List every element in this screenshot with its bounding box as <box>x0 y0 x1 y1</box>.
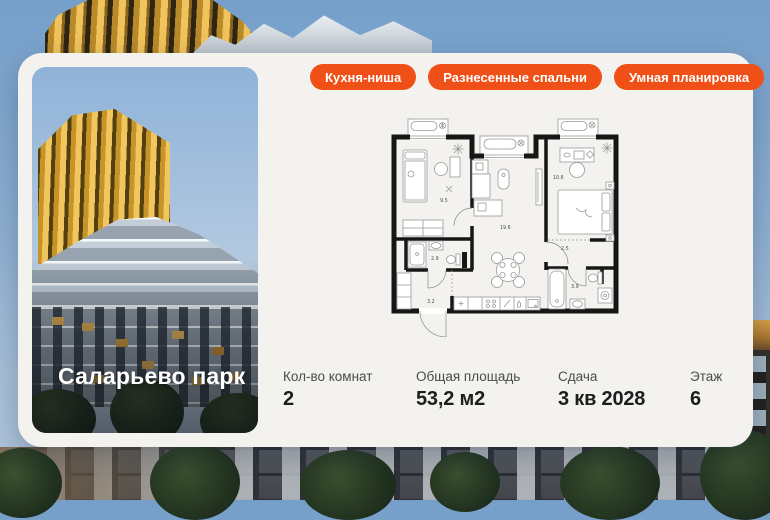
badge-separated-bedrooms[interactable]: Разнесенные спальни <box>428 64 602 90</box>
room-label-bathroom-large: 3.9 <box>571 284 579 290</box>
feature-badges: Кухня-ниша Разнесенные спальни Умная пла… <box>310 64 764 90</box>
room-label-bedroom-right: 10.6 <box>553 175 564 181</box>
stat-delivery: Сдача 3 кв 2028 <box>558 369 645 411</box>
stat-floor-label: Этаж <box>690 369 722 384</box>
stat-area: Общая площадь 53,2 м2 <box>416 369 520 411</box>
ac-box-left <box>408 119 448 135</box>
hallway-furniture <box>397 273 411 309</box>
room-label-bathroom-small: 2.9 <box>431 256 439 262</box>
room-label-hall-pass: 2.5 <box>561 246 569 252</box>
tree <box>560 446 660 520</box>
apartment-card[interactable]: Саларьево парк Кухня-ниша Разнесенные сп… <box>18 53 753 447</box>
stat-delivery-value: 3 кв 2028 <box>558 388 645 411</box>
badge-smart-layout[interactable]: Умная планировка <box>614 64 764 90</box>
stat-area-value: 53,2 м2 <box>416 388 520 411</box>
duct <box>462 252 467 268</box>
tree <box>300 450 396 520</box>
room-label-bedroom-left: 9.5 <box>440 198 448 204</box>
tree <box>150 444 240 520</box>
living-room-furniture <box>472 160 542 288</box>
project-photo[interactable]: Саларьево парк <box>32 67 258 433</box>
stat-rooms-label: Кол-во комнат <box>283 369 372 384</box>
ac-box-mid <box>480 136 528 154</box>
stat-rooms-value: 2 <box>283 388 372 411</box>
project-name: Саларьево парк <box>58 363 245 390</box>
stat-floor-value: 6 <box>690 388 722 411</box>
stat-area-label: Общая площадь <box>416 369 520 384</box>
kitchen-counter <box>454 297 540 310</box>
stat-floor: Этаж 6 <box>690 369 722 411</box>
tree <box>430 452 500 512</box>
ac-box-right <box>558 119 598 135</box>
stat-rooms: Кол-во комнат 2 <box>283 369 372 411</box>
bathroom-small-fixtures <box>408 241 460 267</box>
room-label-living: 19.6 <box>500 225 511 231</box>
room-label-hallway: 3.2 <box>427 299 435 305</box>
page: { "project": { "name": "Саларьево парк" … <box>0 0 770 500</box>
badge-kitchen-niche[interactable]: Кухня-ниша <box>310 64 416 90</box>
stat-delivery-label: Сдача <box>558 369 645 384</box>
bedroom-right-furniture <box>558 143 614 242</box>
floorplan[interactable]: 9.5 19.6 10.6 2.9 3.2 2.5 3.9 <box>390 112 630 337</box>
